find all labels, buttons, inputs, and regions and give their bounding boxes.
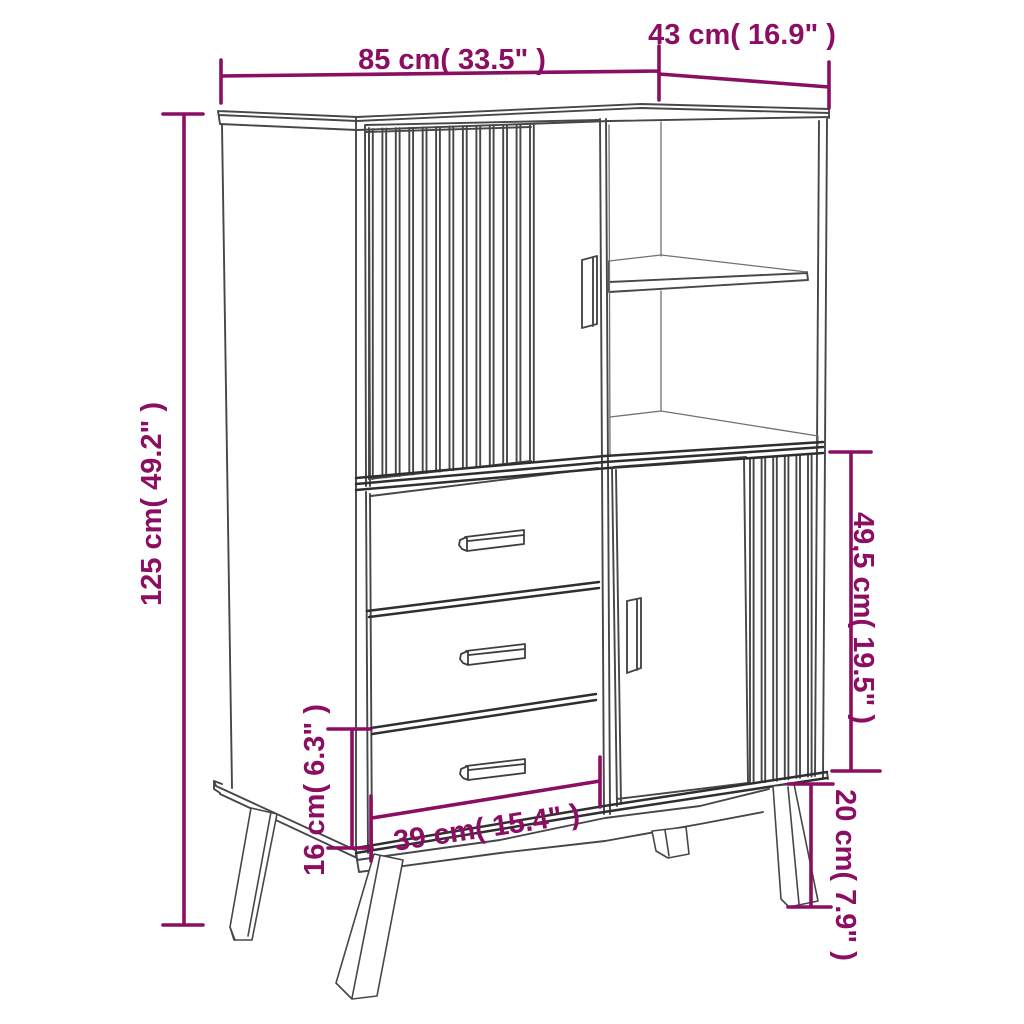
svg-text:20 cm( 7.9" ): 20 cm( 7.9" ) <box>829 789 861 961</box>
svg-text:16 cm( 6.3" ): 16 cm( 6.3" ) <box>299 704 331 876</box>
svg-text:85 cm( 33.5" ): 85 cm( 33.5" ) <box>358 44 546 76</box>
svg-text:43 cm( 16.9" ): 43 cm( 16.9" ) <box>648 19 836 51</box>
svg-text:125 cm( 49.2" ): 125 cm( 49.2" ) <box>136 402 168 606</box>
svg-text:49,5 cm( 19.5" ): 49,5 cm( 19.5" ) <box>847 512 879 724</box>
